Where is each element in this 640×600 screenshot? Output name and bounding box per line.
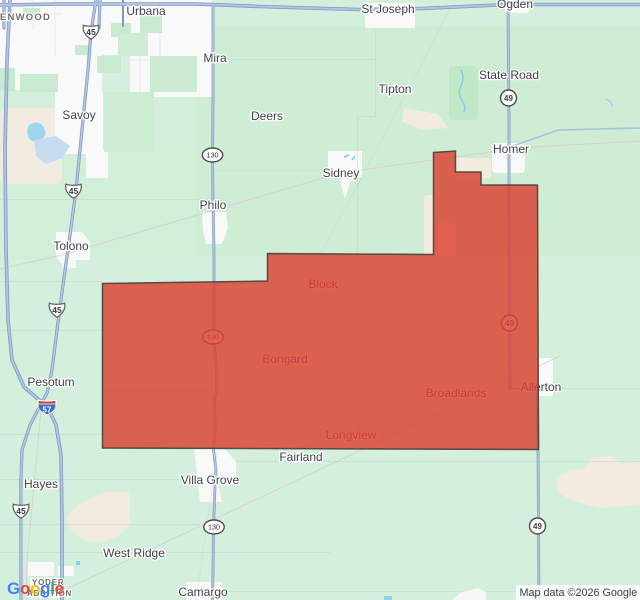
- svg-text:45: 45: [69, 186, 79, 196]
- svg-text:West Ridge: West Ridge: [103, 546, 165, 560]
- svg-text:Homer: Homer: [493, 142, 529, 156]
- svg-text:45: 45: [86, 27, 96, 37]
- svg-text:Fairland: Fairland: [279, 450, 322, 464]
- svg-text:Deers: Deers: [251, 109, 283, 123]
- svg-text:Hayes: Hayes: [24, 477, 58, 491]
- svg-text:Map data ©2026 Google: Map data ©2026 Google: [520, 587, 638, 599]
- svg-text:Savoy: Savoy: [62, 108, 95, 122]
- svg-text:Ogden: Ogden: [497, 0, 533, 11]
- svg-text:45: 45: [52, 305, 62, 315]
- svg-text:Villa Grove: Villa Grove: [181, 473, 240, 487]
- svg-text:130: 130: [208, 523, 220, 532]
- svg-text:45: 45: [16, 506, 26, 516]
- svg-text:49: 49: [533, 522, 542, 531]
- svg-text:ENWOOD: ENWOOD: [0, 12, 51, 23]
- svg-text:Pesotum: Pesotum: [27, 375, 74, 389]
- svg-text:Tolono: Tolono: [53, 239, 89, 253]
- svg-text:State Road: State Road: [479, 68, 539, 82]
- svg-text:Mira: Mira: [203, 51, 227, 65]
- svg-text:Camargo: Camargo: [178, 585, 228, 599]
- svg-text:Google: Google: [7, 579, 64, 598]
- svg-text:Sidney: Sidney: [323, 166, 360, 180]
- svg-text:St Joseph: St Joseph: [361, 2, 414, 16]
- svg-text:Urbana: Urbana: [126, 4, 166, 18]
- svg-text:Philo: Philo: [200, 198, 227, 212]
- svg-text:130: 130: [207, 151, 219, 160]
- svg-text:49: 49: [504, 94, 513, 103]
- svg-text:57: 57: [43, 405, 52, 414]
- svg-text:Tipton: Tipton: [379, 82, 412, 96]
